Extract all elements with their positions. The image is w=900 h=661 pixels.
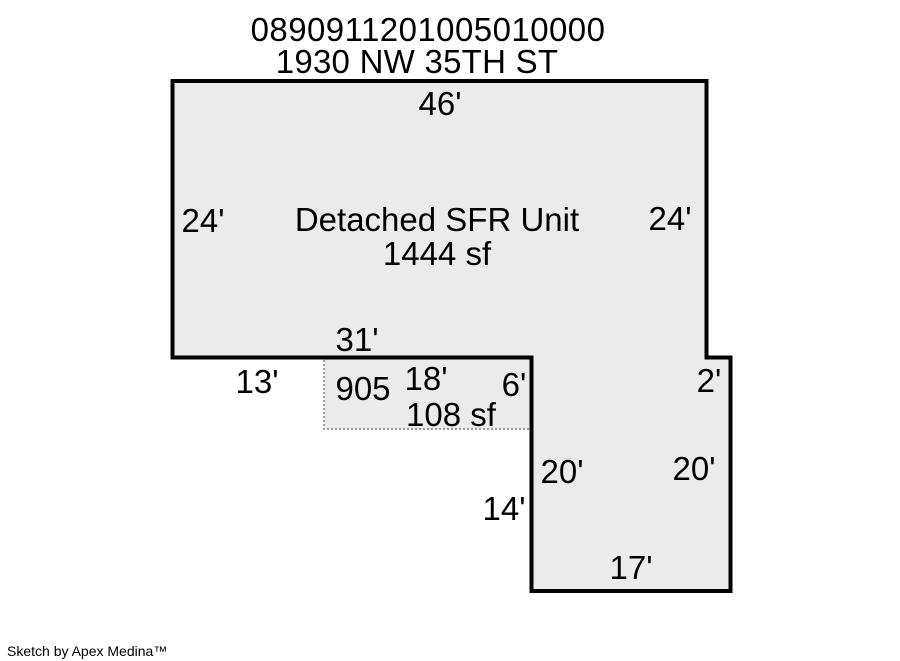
- svg-text:905: 905: [335, 370, 390, 407]
- svg-text:20': 20': [672, 450, 715, 487]
- svg-text:14': 14': [482, 490, 525, 527]
- svg-text:18': 18': [404, 360, 447, 397]
- svg-text:1444 sf: 1444 sf: [383, 235, 492, 272]
- svg-text:24': 24': [648, 200, 691, 237]
- svg-text:20': 20': [540, 453, 583, 490]
- svg-text:1930 NW 35TH ST: 1930 NW 35TH ST: [276, 43, 559, 80]
- svg-text:6': 6': [502, 366, 527, 403]
- svg-text:Sketch by Apex Medina™: Sketch by Apex Medina™: [7, 643, 167, 659]
- svg-text:31': 31': [335, 321, 378, 358]
- svg-text:Detached SFR Unit: Detached SFR Unit: [295, 201, 579, 238]
- svg-text:2': 2': [697, 362, 722, 399]
- svg-text:13': 13': [235, 363, 278, 400]
- svg-text:108 sf: 108 sf: [406, 396, 497, 433]
- svg-text:46': 46': [418, 85, 461, 122]
- svg-text:17': 17': [609, 549, 652, 586]
- svg-text:24': 24': [181, 202, 224, 239]
